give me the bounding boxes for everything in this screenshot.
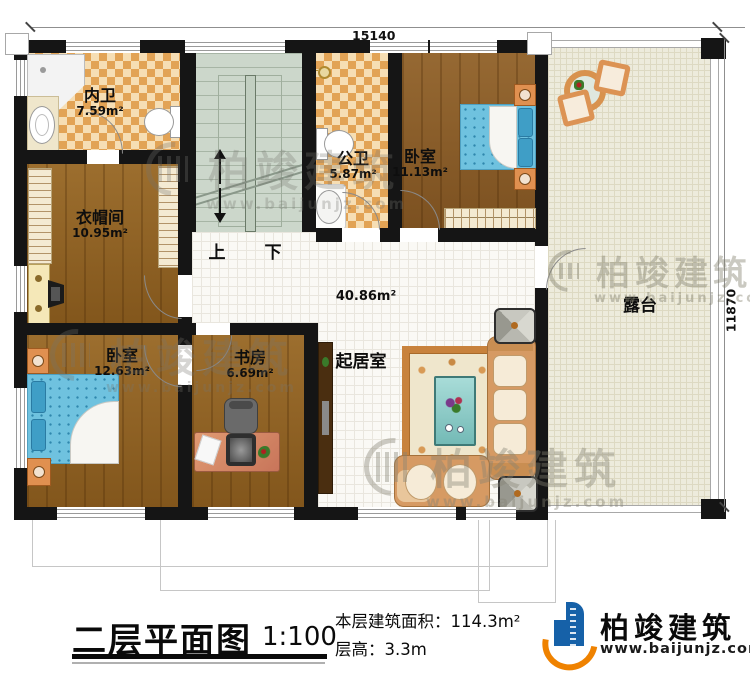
sofa-cushion — [493, 389, 527, 421]
tv-screen — [51, 287, 60, 301]
wall — [304, 323, 318, 507]
dresser-knob — [35, 305, 42, 312]
plan-scale: 1:100 — [262, 622, 337, 652]
room-area: 12.63m² — [94, 365, 150, 378]
title-underline-thin — [72, 662, 325, 664]
end-table-ornament — [511, 322, 518, 329]
monitor — [226, 434, 256, 466]
toilet-bowl — [144, 108, 174, 136]
desk-plant-icon — [258, 446, 272, 460]
window — [185, 40, 285, 53]
floor-area-value: 114.3m² — [451, 612, 521, 631]
duvet — [70, 401, 119, 464]
pier — [5, 33, 29, 55]
cabinet-plant-icon — [322, 357, 329, 367]
dimension-right-value: 11870 — [724, 281, 739, 341]
door-opening — [400, 228, 438, 242]
chair-back — [229, 401, 253, 409]
title-underline — [72, 654, 327, 659]
sofa-cushion — [493, 423, 527, 455]
stair-arrow-down-icon — [214, 213, 226, 223]
eave-outline — [478, 520, 556, 603]
room-label-bath-ensuite: 内卫 7.59m² — [76, 88, 123, 117]
door-opening — [196, 323, 230, 335]
towel-ring-icon — [318, 66, 331, 79]
end-table-ornament — [514, 490, 521, 497]
sofa-main — [487, 336, 536, 480]
end-table — [494, 308, 536, 344]
tv-flat — [322, 401, 329, 435]
dresser — [28, 264, 50, 324]
sink — [312, 184, 346, 230]
room-area: 11.13m² — [392, 166, 448, 179]
pillow — [31, 381, 46, 413]
coffee-table — [434, 376, 476, 446]
nightstand — [27, 458, 51, 486]
window — [57, 507, 145, 520]
eave-outline — [160, 520, 490, 591]
brand-logo-icon — [546, 600, 596, 664]
window — [14, 388, 27, 468]
wardrobe — [28, 168, 52, 264]
door-opening — [342, 228, 380, 242]
room-area: 10.95m² — [72, 227, 128, 240]
floor-area-row: 本层建筑面积：114.3m² — [335, 608, 520, 632]
floor-area-label: 本层建筑面积： — [335, 612, 451, 631]
teacup-icon — [457, 426, 464, 433]
bed — [460, 104, 536, 170]
terrace-post-bottomright — [701, 499, 726, 519]
floor-height-row: 层高：3.3m — [335, 636, 427, 660]
office-chair — [224, 398, 258, 434]
wall — [302, 40, 316, 232]
room-area: 5.87m² — [329, 168, 376, 181]
sofa-cushion — [405, 464, 437, 500]
stair-rail — [245, 75, 256, 232]
nightstand — [514, 168, 536, 190]
window — [430, 40, 497, 53]
living-room-area: 40.86m² — [336, 289, 396, 304]
stair-arrow-stem — [219, 158, 221, 184]
room-name: 卧室 — [392, 149, 448, 166]
brand-website: www.baijunjz.com — [600, 641, 750, 657]
terrace-railing-top — [548, 40, 712, 48]
table-plant-icon — [574, 80, 584, 90]
room-name: 内卫 — [76, 88, 123, 105]
stair-arrow-stem — [219, 188, 221, 214]
logo-swoosh — [532, 605, 609, 674]
room-label-cloakroom: 衣帽间 10.95m² — [72, 210, 128, 239]
room-area: 6.69m² — [226, 367, 273, 380]
room-label-study: 书房 6.69m² — [226, 350, 273, 379]
window — [14, 60, 27, 96]
pier — [527, 32, 552, 55]
room-label-living: 起居室 — [336, 347, 387, 372]
wall — [14, 323, 192, 335]
wall — [178, 164, 192, 507]
room-label-bath-public: 公卫 5.87m² — [329, 151, 376, 180]
room-name: 公卫 — [329, 151, 376, 168]
window — [358, 507, 456, 520]
tv-cabinet — [318, 342, 333, 494]
shower-head-icon — [40, 67, 46, 73]
dimension-line-right — [724, 38, 725, 512]
window — [66, 40, 140, 53]
pillow — [31, 419, 46, 451]
sink-basin — [35, 114, 49, 136]
stairs-down-label: 下 — [265, 238, 282, 263]
flower-arrangement-icon — [443, 394, 467, 416]
dresser-knob — [35, 275, 42, 282]
patio-cushion — [593, 59, 631, 97]
floor-plan-canvas: 内卫 7.59m² 衣帽间 10.95m² 卧室 12.63m² 公卫 5.87… — [0, 0, 750, 674]
room-name: 书房 — [226, 350, 273, 367]
room-area: 7.59m² — [76, 105, 123, 118]
bed — [27, 374, 119, 464]
terrace-railing-bottom — [548, 505, 712, 513]
room-name: 衣帽间 — [72, 210, 128, 227]
room-name: 卧室 — [94, 348, 150, 365]
sofa-cushion — [443, 464, 477, 500]
floor-height-label: 层高： — [335, 640, 385, 659]
terrace-post-topright — [701, 38, 726, 59]
terrace-railing-right — [710, 40, 719, 506]
sink — [29, 106, 55, 144]
window — [208, 507, 294, 520]
sofa-cushion — [493, 355, 527, 387]
sink-basin — [316, 190, 342, 224]
nightstand — [514, 84, 536, 106]
window — [466, 507, 516, 520]
sofa-arm — [488, 463, 533, 477]
pillow — [518, 108, 533, 137]
duvet — [489, 106, 517, 169]
monitor-screen — [230, 438, 252, 462]
sofa-bottom — [394, 455, 490, 507]
room-label-terrace: 露台 — [623, 291, 657, 316]
room-label-bedroom-left: 卧室 12.63m² — [94, 348, 150, 377]
room-label-bedroom-right: 卧室 11.13m² — [392, 149, 448, 178]
floor-height-value: 3.3m — [385, 640, 427, 659]
nightstand — [27, 348, 49, 374]
dimension-top-value: 15140 — [352, 28, 396, 43]
teacup-icon — [445, 424, 453, 432]
pillow — [518, 138, 533, 167]
stairs-up-label: 上 — [209, 238, 226, 263]
window — [14, 266, 27, 312]
wardrobe — [444, 208, 536, 229]
